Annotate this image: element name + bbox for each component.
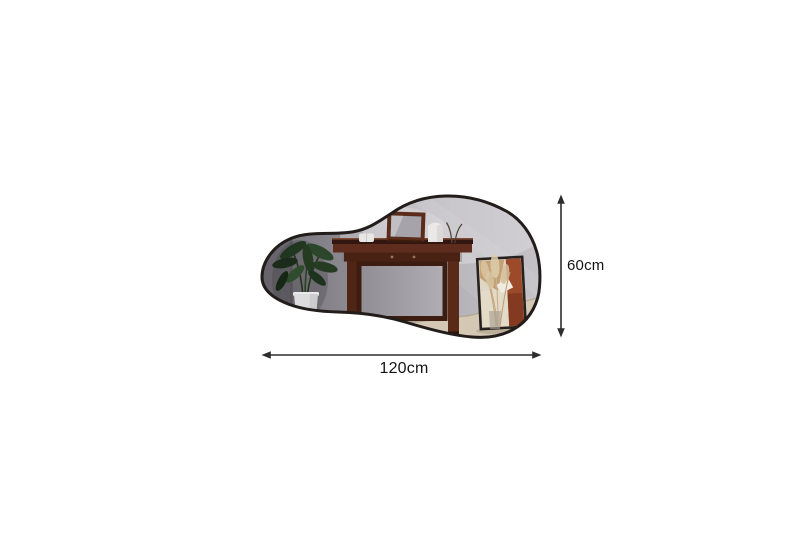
height-dimension-label: 60cm <box>567 257 604 274</box>
height-dimension-arrow <box>557 195 565 338</box>
tabletop-vanity-mirror <box>386 211 425 243</box>
mirror-illustration <box>0 0 800 533</box>
width-dimension-arrow <box>262 351 542 359</box>
product-dimension-diagram: 60cm 120cm <box>0 0 800 533</box>
width-dimension-label: 120cm <box>379 360 428 378</box>
